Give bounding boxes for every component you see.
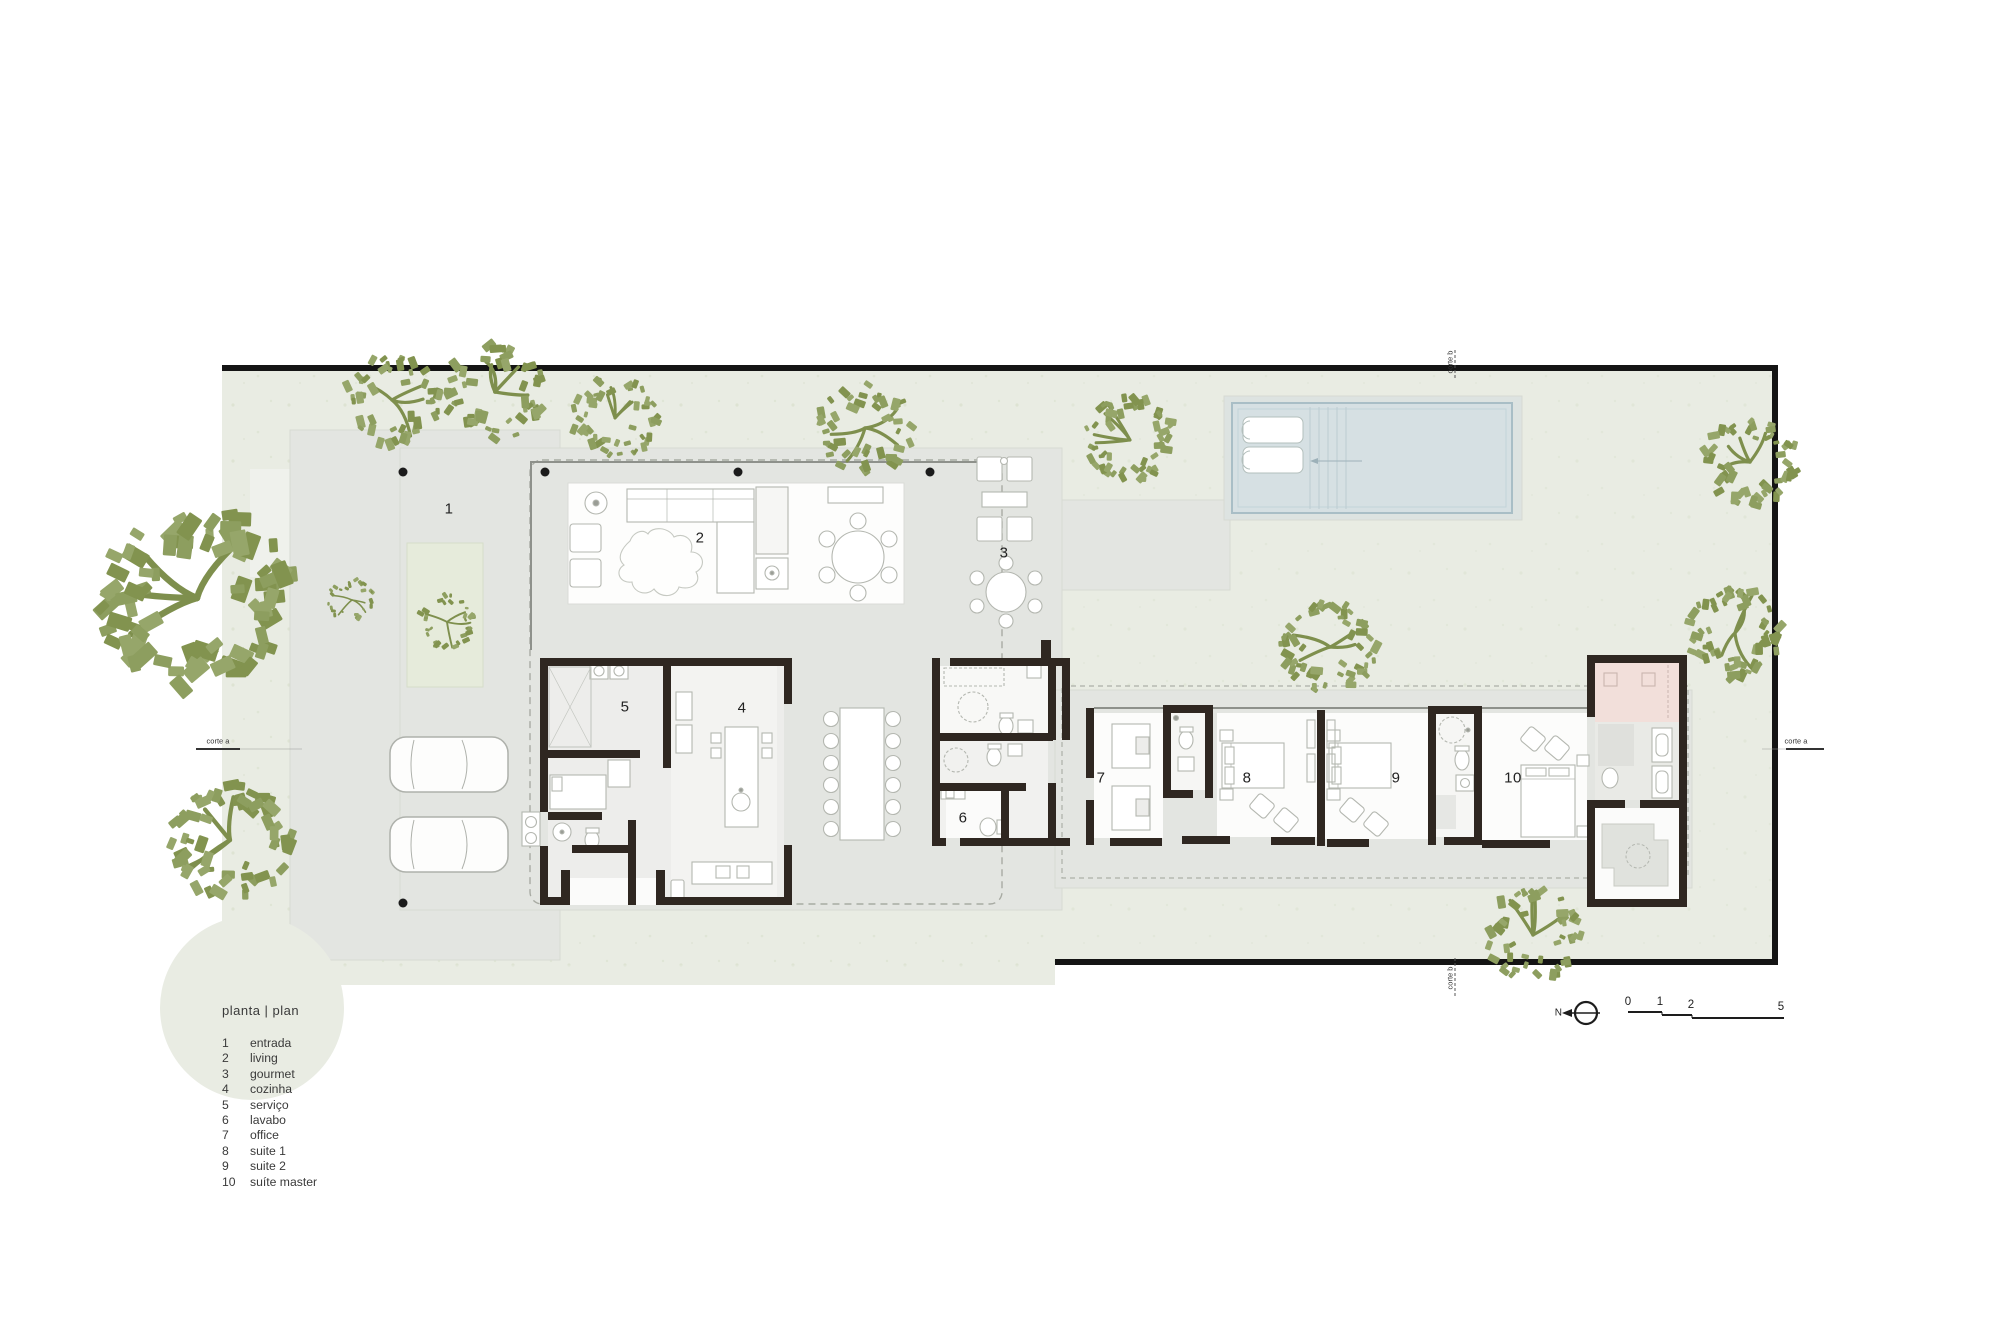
room-label-cozinha: 4 [738, 700, 747, 717]
vanity [1652, 728, 1672, 762]
north-arrow [1562, 1002, 1600, 1024]
column [734, 468, 743, 477]
column [926, 468, 935, 477]
car [390, 737, 508, 792]
section-a-left-label: corte a [207, 737, 230, 746]
section-b-top-label: corte b [1446, 351, 1455, 374]
long-dining-table [840, 708, 884, 840]
room-label-servico: 5 [621, 699, 630, 716]
legend-row: 6lavabo [222, 1113, 317, 1128]
master-closet-floor [1595, 663, 1679, 722]
cabinet [756, 487, 788, 554]
legend-row: 1entrada [222, 1036, 317, 1051]
legend-items: 1entrada 2living 3gourmet 4cozinha 5serv… [222, 1036, 317, 1190]
legend: planta | plan 1entrada 2living 3gourmet … [222, 1003, 317, 1190]
legend-row: 7office [222, 1128, 317, 1143]
lounge-chair [977, 517, 1002, 541]
section-b-bottom-label: corte b [1446, 967, 1455, 990]
desk-chair [1136, 737, 1149, 754]
legend-row: 9suite 2 [222, 1159, 317, 1174]
lounge-chair [1007, 457, 1032, 481]
desk-chair [1136, 799, 1149, 816]
lounge-chair [1007, 517, 1032, 541]
coffee-table [982, 492, 1027, 507]
north-label: N [1555, 1008, 1562, 1019]
scale-tick-2: 2 [1688, 999, 1694, 1011]
legend-row: 4cozinha [222, 1082, 317, 1097]
pool-lounger [1243, 417, 1303, 443]
legend-row: 2living [222, 1051, 317, 1066]
section-a-right-label: corte a [1785, 737, 1808, 746]
room-label-office: 7 [1097, 770, 1106, 787]
room-label-suite-2: 9 [1392, 770, 1401, 787]
kitchen-island [725, 727, 758, 827]
floor-plan-canvas: 1 2 3 4 5 6 7 8 9 10 corte b corte b cor… [0, 0, 2000, 1335]
column [399, 468, 408, 477]
room-label-entrada: 1 [445, 501, 454, 518]
room-label-lavabo: 6 [959, 810, 968, 827]
dining-table-round [832, 531, 884, 583]
pool [1232, 403, 1512, 513]
sofa [627, 489, 754, 522]
legend-row: 10suíte master [222, 1175, 317, 1190]
legend-row: 8suite 1 [222, 1144, 317, 1159]
scale-tick-1: 1 [1657, 996, 1663, 1008]
scale-bar [1628, 1012, 1784, 1018]
column [399, 899, 408, 908]
console [828, 487, 883, 503]
car [390, 817, 508, 872]
armchair [570, 524, 601, 552]
legend-row: 3gourmet [222, 1067, 317, 1082]
pool-lounger [1243, 447, 1303, 473]
room-label-suite-1: 8 [1243, 770, 1252, 787]
legend-heading: planta | plan [222, 1003, 317, 1018]
scale-tick-5: 5 [1778, 1001, 1784, 1013]
chaise [717, 522, 754, 593]
legend-row: 5serviço [222, 1098, 317, 1113]
scale-tick-0: 0 [1625, 996, 1631, 1008]
room-label-suite-master: 10 [1504, 770, 1522, 787]
room-label-gourmet: 3 [1000, 545, 1009, 562]
room-label-living: 2 [696, 530, 705, 547]
column [541, 468, 550, 477]
armchair [570, 559, 601, 587]
lounge-chair [977, 457, 1002, 481]
kitchen-counter [692, 862, 772, 884]
gourmet-table [986, 572, 1026, 612]
